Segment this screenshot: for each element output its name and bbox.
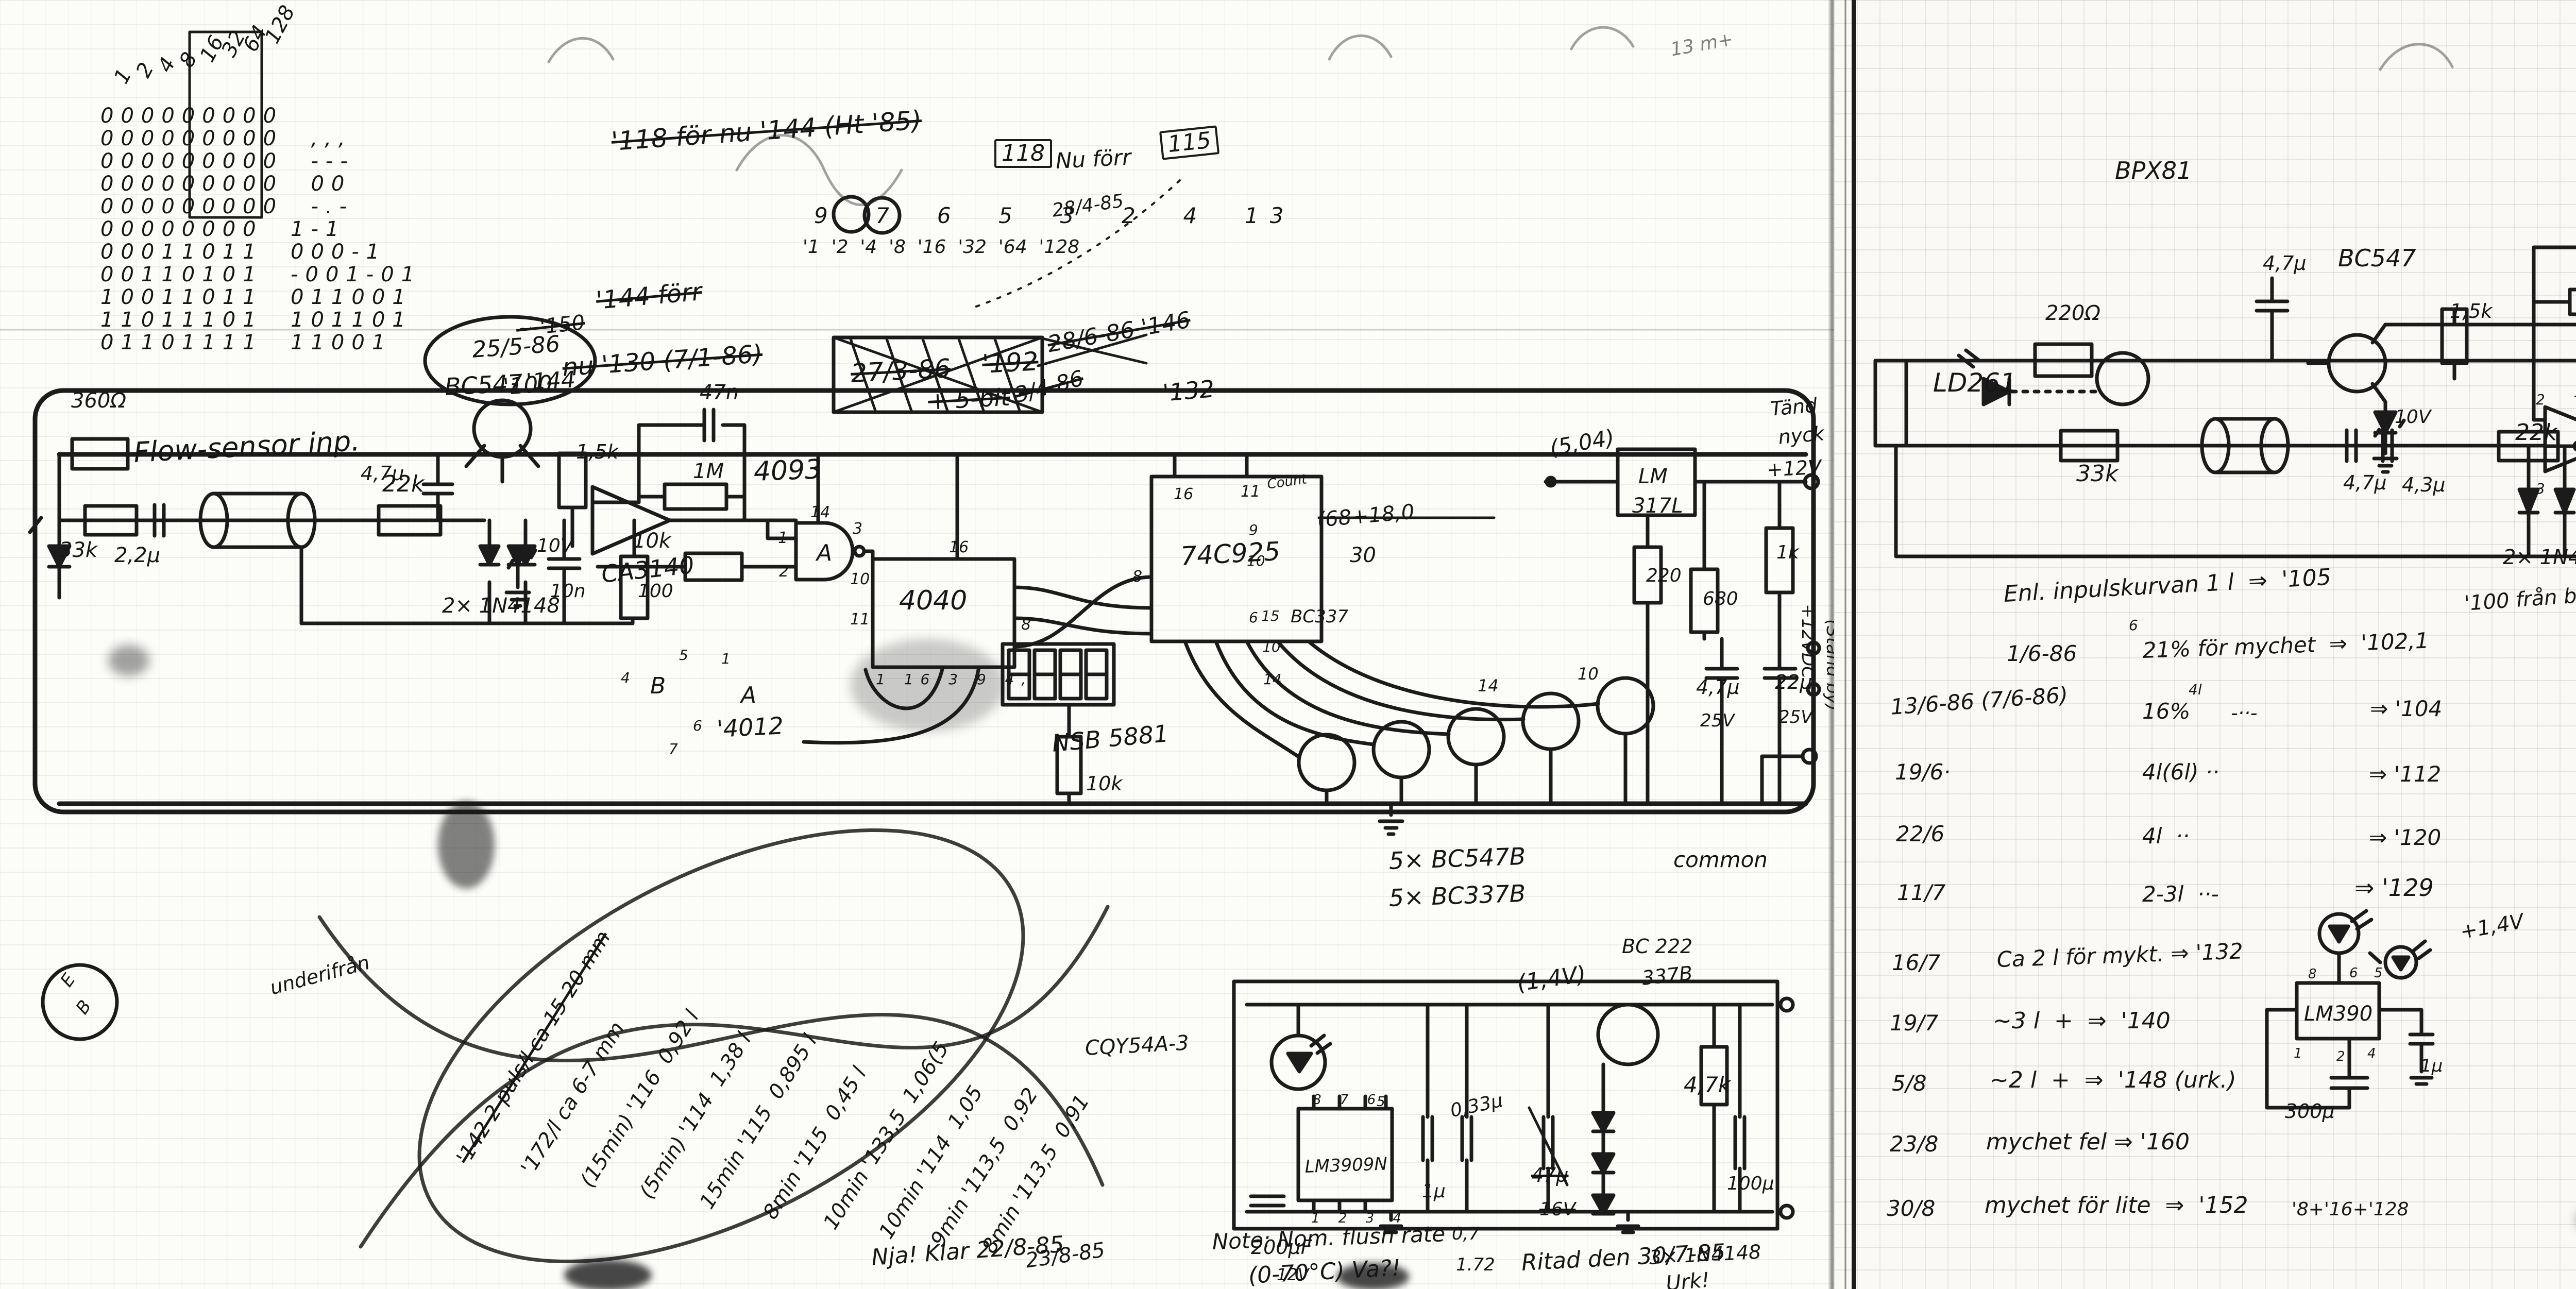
handwritten-label: 10: [850, 572, 870, 587]
binary-row: 000000000 ,,,: [100, 128, 352, 149]
handwritten-label: '8+'16+'128: [2292, 1200, 2409, 1219]
handwritten-label: 19/6·: [1895, 761, 1951, 783]
handwritten-label: 1,5k: [576, 442, 618, 462]
handwritten-label: '192: [981, 348, 1039, 377]
handwritten-label: 220: [1646, 567, 1682, 585]
binary-row: 000000000: [100, 106, 283, 126]
binary-row: 11011101 101101: [100, 310, 413, 330]
handwritten-label: 15: [1261, 609, 1280, 623]
handwritten-label: 8: [2308, 968, 2317, 981]
handwritten-label: 22/6: [1896, 823, 1944, 845]
handwritten-label: 16: [949, 540, 969, 555]
handwritten-label: 47n: [700, 382, 739, 403]
handwritten-label: -··-: [2231, 703, 2258, 723]
handwritten-label: LM3909N: [1304, 1155, 1387, 1176]
handwritten-label: 27/3-86: [850, 355, 951, 386]
handwritten-label: nyck: [1777, 423, 1825, 447]
handwritten-label: +12VDC: [1799, 604, 1817, 679]
handwritten-label: 16V: [1539, 1200, 1575, 1219]
binary-row: 000000000 -.-: [100, 196, 354, 217]
handwritten-label: 30/8: [1887, 1198, 1935, 1219]
handwritten-label: 1: [721, 652, 731, 666]
handwritten-label: 6: [693, 719, 702, 733]
handwritten-label: 5: [679, 648, 688, 663]
handwritten-label: BC 222: [1622, 937, 1692, 956]
handwritten-label: 33k: [2076, 463, 2118, 485]
handwritten-label: 1.72: [1456, 1256, 1495, 1274]
handwritten-label: 10: [1578, 666, 1599, 682]
handwritten-label: 10k: [1086, 774, 1122, 793]
handwritten-label: CQY54A-3: [1084, 1032, 1190, 1059]
handwritten-label: '132: [1162, 377, 1215, 405]
handwritten-label: 5: [1377, 1095, 1385, 1109]
handwritten-label: 5: [2374, 966, 2383, 980]
handwritten-label: 16: [1174, 487, 1193, 502]
handwritten-label: 14: [810, 505, 830, 520]
handwritten-label: +12V: [1766, 457, 1822, 480]
handwritten-label: A: [817, 542, 832, 565]
handwritten-label: '4012: [716, 714, 784, 741]
handwritten-label: ⇒ '120: [2369, 827, 2441, 849]
handwritten-label: ⇒ '112: [2369, 764, 2441, 785]
handwritten-label: 11/7: [1897, 882, 1945, 904]
handwritten-label: 2: [779, 564, 789, 580]
handwritten-label: BPX81: [2115, 159, 2192, 182]
binary-row: 000000000 ---: [100, 151, 355, 172]
handwritten-label: 25V: [1700, 712, 1735, 730]
handwritten-label: 8: [1021, 617, 1031, 633]
handwritten-label: 25V: [1778, 708, 1813, 726]
handwritten-label: 1/6-86: [2007, 643, 2077, 665]
handwritten-label: 9: [1249, 523, 1258, 537]
handwritten-label: 14: [1263, 672, 1282, 687]
handwritten-label: 22k: [2515, 421, 2557, 444]
handwritten-label: 19/7: [1890, 1012, 1938, 1034]
handwritten-label: BC547: [444, 371, 523, 399]
handwritten-label: 5× BC337B: [1388, 881, 1526, 910]
handwritten-label: 2-3l ··-: [2142, 884, 2219, 905]
handwritten-label: 4,7µ: [2343, 473, 2387, 493]
handwritten-label: '1 '2 '4 '8 '16 '32 '64 '128: [803, 238, 1079, 257]
binary-row: 00000000 1-1: [100, 219, 346, 240]
handwritten-label: common: [1673, 849, 1768, 871]
handwritten-label: mychet fel ⇒ '160: [1986, 1131, 2190, 1154]
pencil-scribbles-right: [2380, 35, 2576, 70]
handwritten-label: ~3 l + ⇒ '140: [1993, 1010, 2171, 1032]
handwritten-label: 1: [778, 531, 788, 546]
handwritten-label: 23/8: [1890, 1133, 1938, 1155]
handwritten-label: A: [741, 684, 756, 707]
page-right: Iₘₐₓ vid 12V ~ 240 mAIₘᵢₙ ~ 11 mABPX81LD…: [1834, 0, 2576, 1289]
handwritten-label: 5/8: [1892, 1073, 1927, 1094]
handwritten-label: 300µ: [2285, 1101, 2335, 1121]
handwritten-label: 9 7 6 5 3 2 4 13: [814, 205, 1295, 227]
page-left: 1248163264128000000000000000000 ,,,00000…: [0, 0, 1834, 1289]
handwritten-label: 10: [1247, 554, 1265, 568]
handwritten-label: 2× 1N4148: [442, 596, 560, 616]
handwritten-label: 6: [1249, 610, 1258, 625]
handwritten-label: 4l ··: [2142, 825, 2190, 847]
handwritten-label: 100: [638, 582, 673, 601]
handwritten-label: Tänd: [1770, 395, 1818, 419]
handwritten-label: mychet för lite ⇒ '152: [1985, 1194, 2248, 1217]
binary-row: 10011011 011001: [100, 287, 413, 308]
handwritten-label: 1: [2294, 1047, 2302, 1060]
binary-row: 00011011 000-1: [100, 242, 386, 262]
handwritten-label: 16%: [2142, 701, 2190, 722]
handwritten-label: ⇒ '129: [2354, 876, 2434, 900]
handwritten-label: 1M: [693, 461, 724, 482]
handwritten-label: 2: [2336, 1050, 2345, 1063]
handwritten-label: 10V: [537, 537, 573, 555]
handwritten-label: 4l(6l) ··: [2142, 761, 2219, 783]
handwritten-label: 2× 1N4148: [2503, 547, 2576, 568]
handwritten-label: 118: [994, 139, 1052, 168]
handwritten-label: 4,7µ: [2263, 253, 2307, 273]
handwritten-label: 5× BC547B: [1388, 844, 1526, 873]
handwritten-label: 3: [853, 521, 862, 537]
handwritten-label: 10n: [2573, 382, 2576, 401]
handwritten-label: B: [650, 675, 666, 698]
handwritten-label: 1 16 3 9 4,: [876, 672, 1033, 687]
handwritten-label: Nu förr: [1055, 146, 1131, 172]
handwritten-label: 1k: [1776, 544, 1799, 562]
handwritten-label: 100µ: [1727, 1175, 1774, 1193]
handwritten-label: 360Ω: [71, 391, 126, 411]
handwritten-label: 11: [1241, 484, 1260, 500]
handwritten-label: + 5-bit: [927, 385, 1010, 413]
handwritten-label: 8: [1132, 569, 1142, 585]
handwritten-label: 1µ: [1422, 1182, 1446, 1201]
handwritten-label: 2,2µ: [114, 545, 160, 566]
handwritten-label: LM390: [2304, 1004, 2372, 1024]
handwritten-label: 33k: [59, 540, 97, 561]
handwritten-label: 1µ: [2420, 1057, 2443, 1075]
handwritten-label: 74C925: [1180, 538, 1281, 569]
handwritten-label: 10: [1262, 640, 1281, 654]
handwritten-label: 25/5-86: [471, 333, 561, 362]
binary-row: 01101111 11001: [100, 332, 392, 353]
handwritten-label: 11: [850, 612, 870, 627]
handwritten-label: 4: [621, 671, 630, 685]
handwritten-label: Urk!: [1665, 1270, 1710, 1289]
notebook-scan: 1248163264128000000000000000000 ,,,00000…: [0, 0, 2576, 1289]
handwritten-label: 220Ω: [2045, 303, 2100, 324]
handwritten-label: 4040: [899, 587, 967, 614]
handwritten-label: 317L: [1632, 496, 1683, 516]
handwritten-label: ~2 l + ⇒ '148 (urk.): [1990, 1069, 2236, 1092]
handwritten-label: LD261: [1933, 370, 2016, 396]
handwritten-label: 4,7k: [1684, 1074, 1731, 1096]
handwritten-label: 115: [1159, 125, 1219, 160]
handwritten-label: 1,5k: [2450, 301, 2492, 321]
handwritten-label: 10n: [550, 582, 586, 601]
handwritten-label: 7: [669, 742, 678, 756]
handwritten-label: 30: [1350, 545, 1376, 566]
handwritten-label: 4l: [2189, 683, 2202, 697]
handwritten-label: 10V: [2395, 408, 2431, 427]
handwritten-label: 6: [2129, 618, 2138, 633]
handwritten-label: 4,7µ: [361, 464, 404, 483]
handwritten-label: 47µ: [1531, 1165, 1569, 1185]
handwritten-label: 6: [2349, 966, 2358, 980]
handwritten-label: 337B: [1641, 963, 1693, 988]
binary-row: 000000000 00: [100, 174, 351, 194]
handwritten-label: 14: [1478, 677, 1499, 694]
handwritten-label: 16/7: [1892, 952, 1940, 974]
handwritten-label: 2: [2536, 393, 2545, 407]
handwritten-label: 4093: [753, 456, 822, 485]
handwritten-label: 680: [1703, 590, 1738, 608]
handwritten-label: 10k: [633, 531, 671, 551]
handwritten-label: 4,3µ: [2402, 475, 2446, 495]
handwritten-label: LM: [1638, 466, 1668, 487]
binary-row: 00110101 -001-01: [100, 264, 421, 285]
handwritten-label: BC547: [2338, 246, 2416, 270]
handwritten-label: 4: [2367, 1047, 2376, 1060]
handwritten-label: 8 7 6: [1313, 1093, 1383, 1107]
handwritten-label: ⇒ '104: [2370, 698, 2442, 720]
handwritten-label: 4,7µ: [1696, 677, 1740, 697]
handwritten-label: BC337: [1291, 608, 1348, 625]
handwritten-label: 0,7: [1452, 1225, 1480, 1243]
handwritten-label: 3: [2536, 482, 2545, 496]
